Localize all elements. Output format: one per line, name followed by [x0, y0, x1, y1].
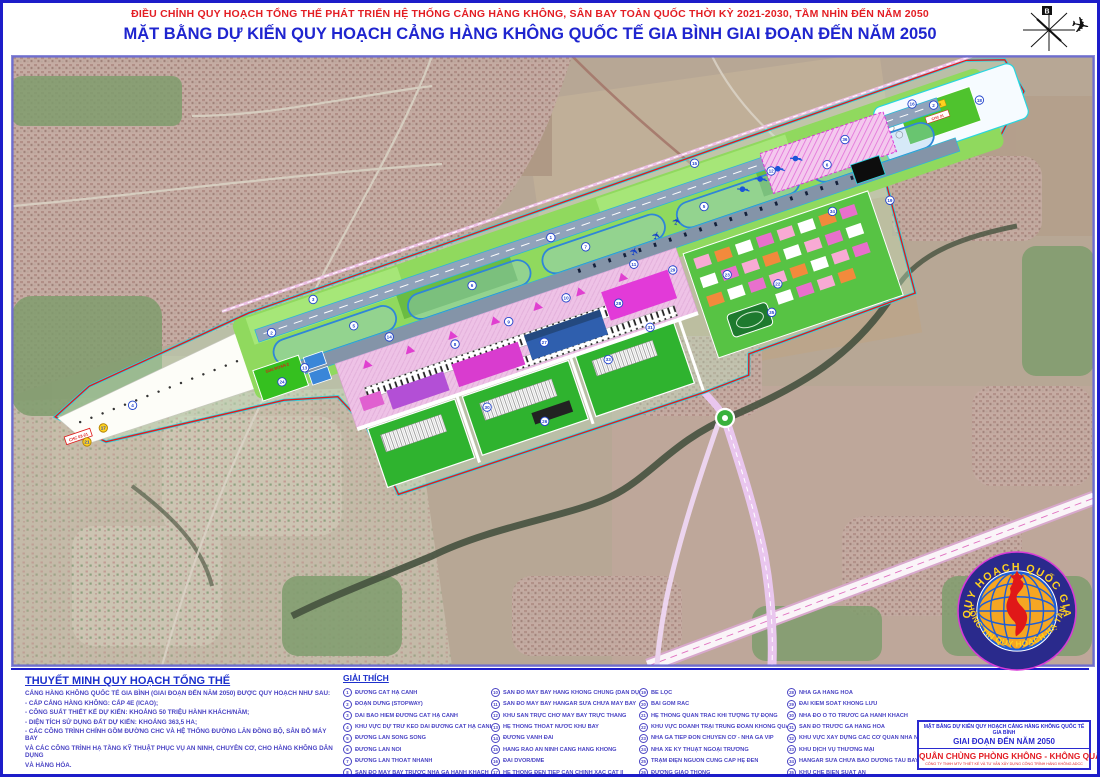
svg-text:3: 3	[312, 297, 315, 302]
svg-text:33: 33	[606, 357, 612, 362]
legend-item: 13HỆ THỐNG THOÁT NƯỚC KHU BAY	[491, 723, 639, 732]
svg-text:8: 8	[454, 342, 457, 347]
note-line: VÀ HÀNG HÓA.	[25, 762, 337, 769]
legend-item: 28NHÀ GA HÀNG HÓA	[787, 688, 935, 697]
legend-item: 22KHU VỰC DOANH TRẠI TRUNG ĐOÀN KHÔNG QU…	[639, 723, 787, 732]
svg-text:36: 36	[842, 137, 848, 142]
map-area: CHC 03-21 ĐÀI VOR CHC 21	[11, 55, 1095, 667]
north-compass-icon: B ✈	[1015, 5, 1091, 55]
legend-item: 19BỂ LỌC	[639, 688, 787, 697]
page-title: MẶT BẰNG DỰ KIẾN QUY HOẠCH CẢNG HÀNG KHÔ…	[53, 25, 1007, 44]
svg-text:1: 1	[550, 235, 553, 240]
note-line: CẢNG HÀNG KHÔNG QUỐC TẾ GIA BÌNH (GIAI Đ…	[25, 690, 337, 697]
legend-item: 29ĐÀI KIỂM SOÁT KHÔNG LƯU	[787, 700, 935, 709]
legend-item: 2ĐOẠN DỪNG (STOPWAY)	[343, 700, 491, 709]
svg-text:2: 2	[932, 103, 935, 108]
svg-text:26: 26	[542, 419, 548, 424]
legend-item: 20BÃI GOM RÁC	[639, 700, 787, 709]
svg-text:5: 5	[703, 204, 706, 209]
legend-item: 32KHU VỰC XÂY DỰNG CÁC CƠ QUAN NHÀ NƯỚC …	[787, 734, 935, 743]
svg-text:35: 35	[769, 310, 775, 315]
sheet-header: ĐIỀU CHỈNH QUY HOẠCH TỔNG THỂ PHÁT TRIỂN…	[53, 8, 1007, 44]
map-canvas: CHC 03-21 ĐÀI VOR CHC 21	[12, 56, 1094, 666]
titleblock-line1: MẶT BẰNG DỰ KIẾN QUY HOẠCH CẢNG HÀNG KHÔ…	[921, 724, 1087, 736]
legend-item: 24NHÀ XE KỸ THUẬT NGOẠI TRƯỜNG	[639, 745, 787, 754]
legend-item: 5ĐƯỜNG LĂN SONG SONG	[343, 734, 491, 743]
legend-item: 11SÂN ĐỖ MÁY BAY HANGAR SỬA CHỮA MÁY BAY	[491, 700, 639, 709]
legend-item: 16ĐÀI DVOR/DME	[491, 757, 639, 766]
svg-text:30: 30	[485, 405, 491, 410]
svg-text:22: 22	[775, 282, 781, 287]
legend-item: 17HỆ THỐNG ĐÈN TIẾP CẬN CHÍNH XÁC CAT II	[491, 768, 639, 777]
titleblock-company: CÔNG TY TNHH MTV THIẾT KẾ VÀ TƯ VẤN XÂY …	[920, 762, 1088, 766]
svg-text:11: 11	[631, 262, 636, 267]
legend-item: 33KHU DỊCH VỤ THƯƠNG MẠI	[787, 745, 935, 754]
svg-text:6: 6	[826, 162, 829, 167]
svg-text:19: 19	[887, 198, 893, 203]
legend-item: 21HỆ THỐNG QUAN TRẮC KHÍ TƯỢNG TỰ ĐỘNG	[639, 711, 787, 720]
legend-item: 15HÀNG RÀO AN NINH CẢNG HÀNG KHÔNG	[491, 745, 639, 754]
svg-text:16: 16	[910, 102, 916, 107]
svg-text:4: 4	[131, 403, 134, 408]
legend-item: 7ĐƯỜNG LĂN THOÁT NHANH	[343, 757, 491, 766]
note-line: - CÁC CÔNG TRÌNH CHÍNH GỒM ĐƯỜNG CHC VÀ …	[25, 728, 337, 742]
legend-item: 12KHU SÂN TRỰC CHỜ MÁY BAY TRỰC THĂNG	[491, 711, 639, 720]
svg-text:14: 14	[387, 335, 393, 340]
legend-item: 8SÂN ĐỖ MÁY BAY TRƯỚC NHÀ GA HÀNH KHÁCH	[343, 768, 491, 777]
legend-item: 4KHU VỰC DỰ TRỮ KÉO DÀI ĐƯỜNG CẤT HẠ CÁN…	[343, 723, 491, 732]
svg-text:31: 31	[648, 325, 654, 330]
legend-item: 23NHÀ GA TIẾP ĐÓN CHUYÊN CƠ - NHÀ GA VIP	[639, 734, 787, 743]
svg-text:12: 12	[769, 169, 775, 174]
airplane-icon: ✈	[1069, 11, 1091, 39]
legend-item: 26ĐƯỜNG GIAO THÔNG	[639, 768, 787, 777]
legend-item: 1ĐƯỜNG CẤT HẠ CÁNH	[343, 688, 491, 697]
svg-text:29: 29	[670, 268, 676, 273]
north-label: B	[1044, 9, 1049, 16]
svg-text:6: 6	[471, 283, 474, 288]
svg-text:15: 15	[692, 161, 698, 166]
svg-text:24: 24	[279, 380, 285, 385]
plan-sheet: ĐIỀU CHỈNH QUY HOẠCH TỔNG THỂ PHÁT TRIỂN…	[0, 0, 1100, 777]
note-line: VÀ CÁC CÔNG TRÌNH HẠ TẦNG KỸ THUẬT PHỤC …	[25, 745, 337, 759]
title-block: MẶT BẰNG DỰ KIẾN QUY HOẠCH CẢNG HÀNG KHÔ…	[917, 720, 1091, 770]
titleblock-line2: GIAI ĐOẠN ĐẾN NĂM 2050	[919, 737, 1089, 746]
note-line: - CẤP CẢNG HÀNG KHÔNG: CẤP 4E (ICAO);	[25, 700, 337, 707]
legend-item: 34HANGAR SỬA CHỮA BẢO DƯỠNG TÀU BAY	[787, 757, 935, 766]
note-line: - CÔNG SUẤT THIẾT KẾ DỰ KIẾN: KHOẢNG 50 …	[25, 709, 337, 716]
titleblock-agency: QUÂN CHỦNG PHÒNG KHÔNG - KHÔNG QUÂN	[919, 751, 1089, 761]
svg-text:7: 7	[584, 245, 587, 250]
legend-item: 14ĐƯỜNG VÀNH ĐAI	[491, 734, 639, 743]
svg-text:18: 18	[977, 98, 983, 103]
legend-item: 31SÂN ĐỖ TRƯỚC GA HÀNG HÓA	[787, 723, 935, 732]
plan-notes: THUYẾT MINH QUY HOẠCH TỔNG THỂ CẢNG HÀNG…	[25, 675, 337, 771]
svg-text:27: 27	[542, 340, 548, 345]
svg-text:13: 13	[302, 366, 308, 371]
svg-text:34: 34	[830, 209, 836, 214]
legend-item: 30NHÀ ĐỖ Ô TÔ TRƯỚC GA HÀNH KHÁCH	[787, 711, 935, 720]
doc-supertitle: ĐIỀU CHỈNH QUY HOẠCH TỔNG THỂ PHÁT TRIỂN…	[53, 8, 1007, 20]
legend-title: GIẢI THÍCH	[343, 673, 911, 683]
svg-text:10: 10	[564, 296, 570, 301]
svg-text:21: 21	[84, 440, 90, 445]
legend-item: 35KHU CHẾ BIẾN SUẤT ĂN	[787, 768, 935, 777]
note-line: - DIỆN TÍCH SỬ DỤNG ĐẤT DỰ KIẾN: KHOẢNG …	[25, 719, 337, 726]
planning-seal: QUY HOẠCH QUỐC GIA THÔNG TIN QUY HOẠCH-H…	[956, 550, 1078, 672]
notes-title: THUYẾT MINH QUY HOẠCH TỔNG THỂ	[25, 675, 337, 687]
legend-item: 6ĐƯỜNG LĂN NỐI	[343, 745, 491, 754]
svg-text:2: 2	[270, 330, 273, 335]
legend-item: 25TRẠM ĐIỆN NGUỒN CUNG CẤP HỆ ĐÈN	[639, 757, 787, 766]
svg-text:5: 5	[352, 323, 355, 328]
legend: GIẢI THÍCH 1ĐƯỜNG CẤT HẠ CÁNH2ĐOẠN DỪNG …	[343, 673, 911, 777]
svg-text:23: 23	[725, 272, 731, 277]
legend-item: 10SÂN ĐỖ MÁY BAY HÀNG KHÔNG CHUNG (DÂN D…	[491, 688, 639, 697]
svg-text:9: 9	[507, 319, 510, 324]
svg-text:28: 28	[616, 301, 622, 306]
svg-text:17: 17	[101, 426, 107, 431]
legend-item: 3DẢI BẢO HIỂM ĐƯỜNG CẤT HẠ CÁNH	[343, 711, 491, 720]
